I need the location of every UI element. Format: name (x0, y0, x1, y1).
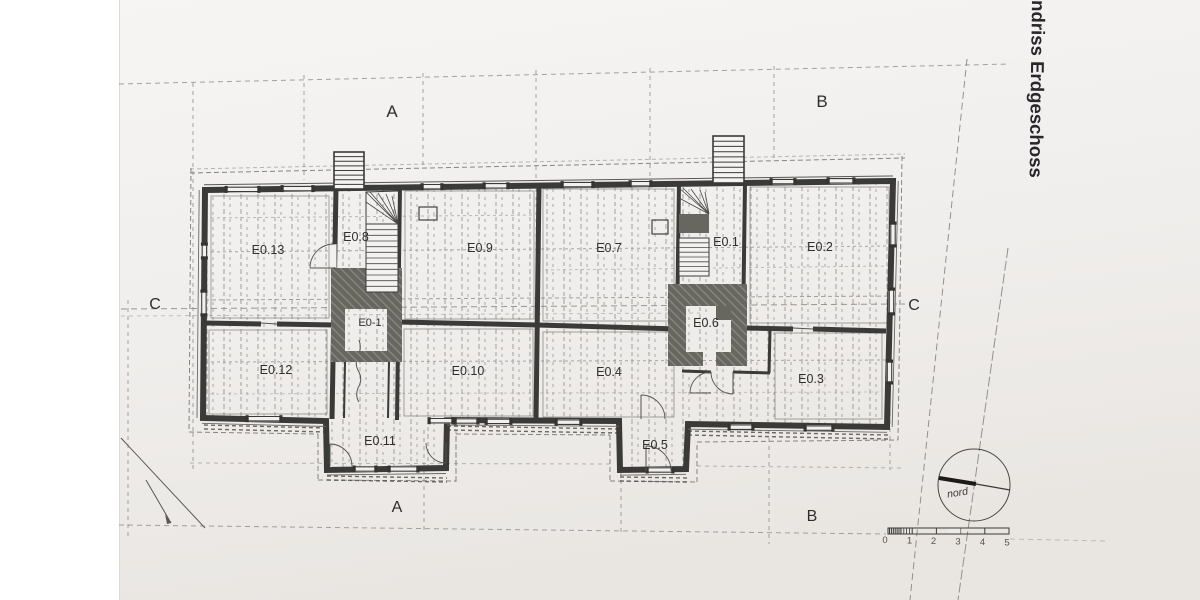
svg-text:E0.2: E0.2 (807, 240, 833, 254)
svg-text:E0.11: E0.11 (364, 434, 396, 448)
svg-text:1: 1 (907, 536, 912, 547)
svg-text:E0.7: E0.7 (596, 241, 622, 255)
svg-text:E0.6: E0.6 (693, 316, 719, 330)
svg-text:B: B (816, 92, 827, 111)
svg-text:E0.10: E0.10 (452, 364, 485, 378)
svg-text:E0.3: E0.3 (798, 372, 824, 386)
svg-text:E0.13: E0.13 (252, 243, 285, 257)
svg-text:E0-1: E0-1 (358, 317, 381, 329)
svg-text:C: C (908, 297, 920, 314)
svg-text:E0.1: E0.1 (713, 235, 739, 249)
svg-text:E0.5: E0.5 (642, 438, 668, 452)
svg-text:2: 2 (931, 536, 936, 547)
svg-text:A: A (392, 499, 403, 516)
svg-text:A: A (386, 102, 398, 121)
svg-text:E0.8: E0.8 (343, 230, 369, 244)
svg-text:B: B (807, 508, 818, 525)
svg-text:4: 4 (980, 537, 985, 548)
svg-text:5: 5 (1004, 538, 1009, 549)
svg-text:E0.12: E0.12 (260, 363, 293, 377)
svg-text:3: 3 (955, 537, 960, 548)
svg-text:C: C (149, 296, 161, 313)
svg-text:E0.4: E0.4 (596, 365, 622, 379)
svg-text:Grundriss Erdgeschoss: Grundriss Erdgeschoss (1026, 0, 1050, 178)
svg-text:E0.9: E0.9 (467, 241, 493, 255)
svg-text:0: 0 (882, 535, 887, 546)
